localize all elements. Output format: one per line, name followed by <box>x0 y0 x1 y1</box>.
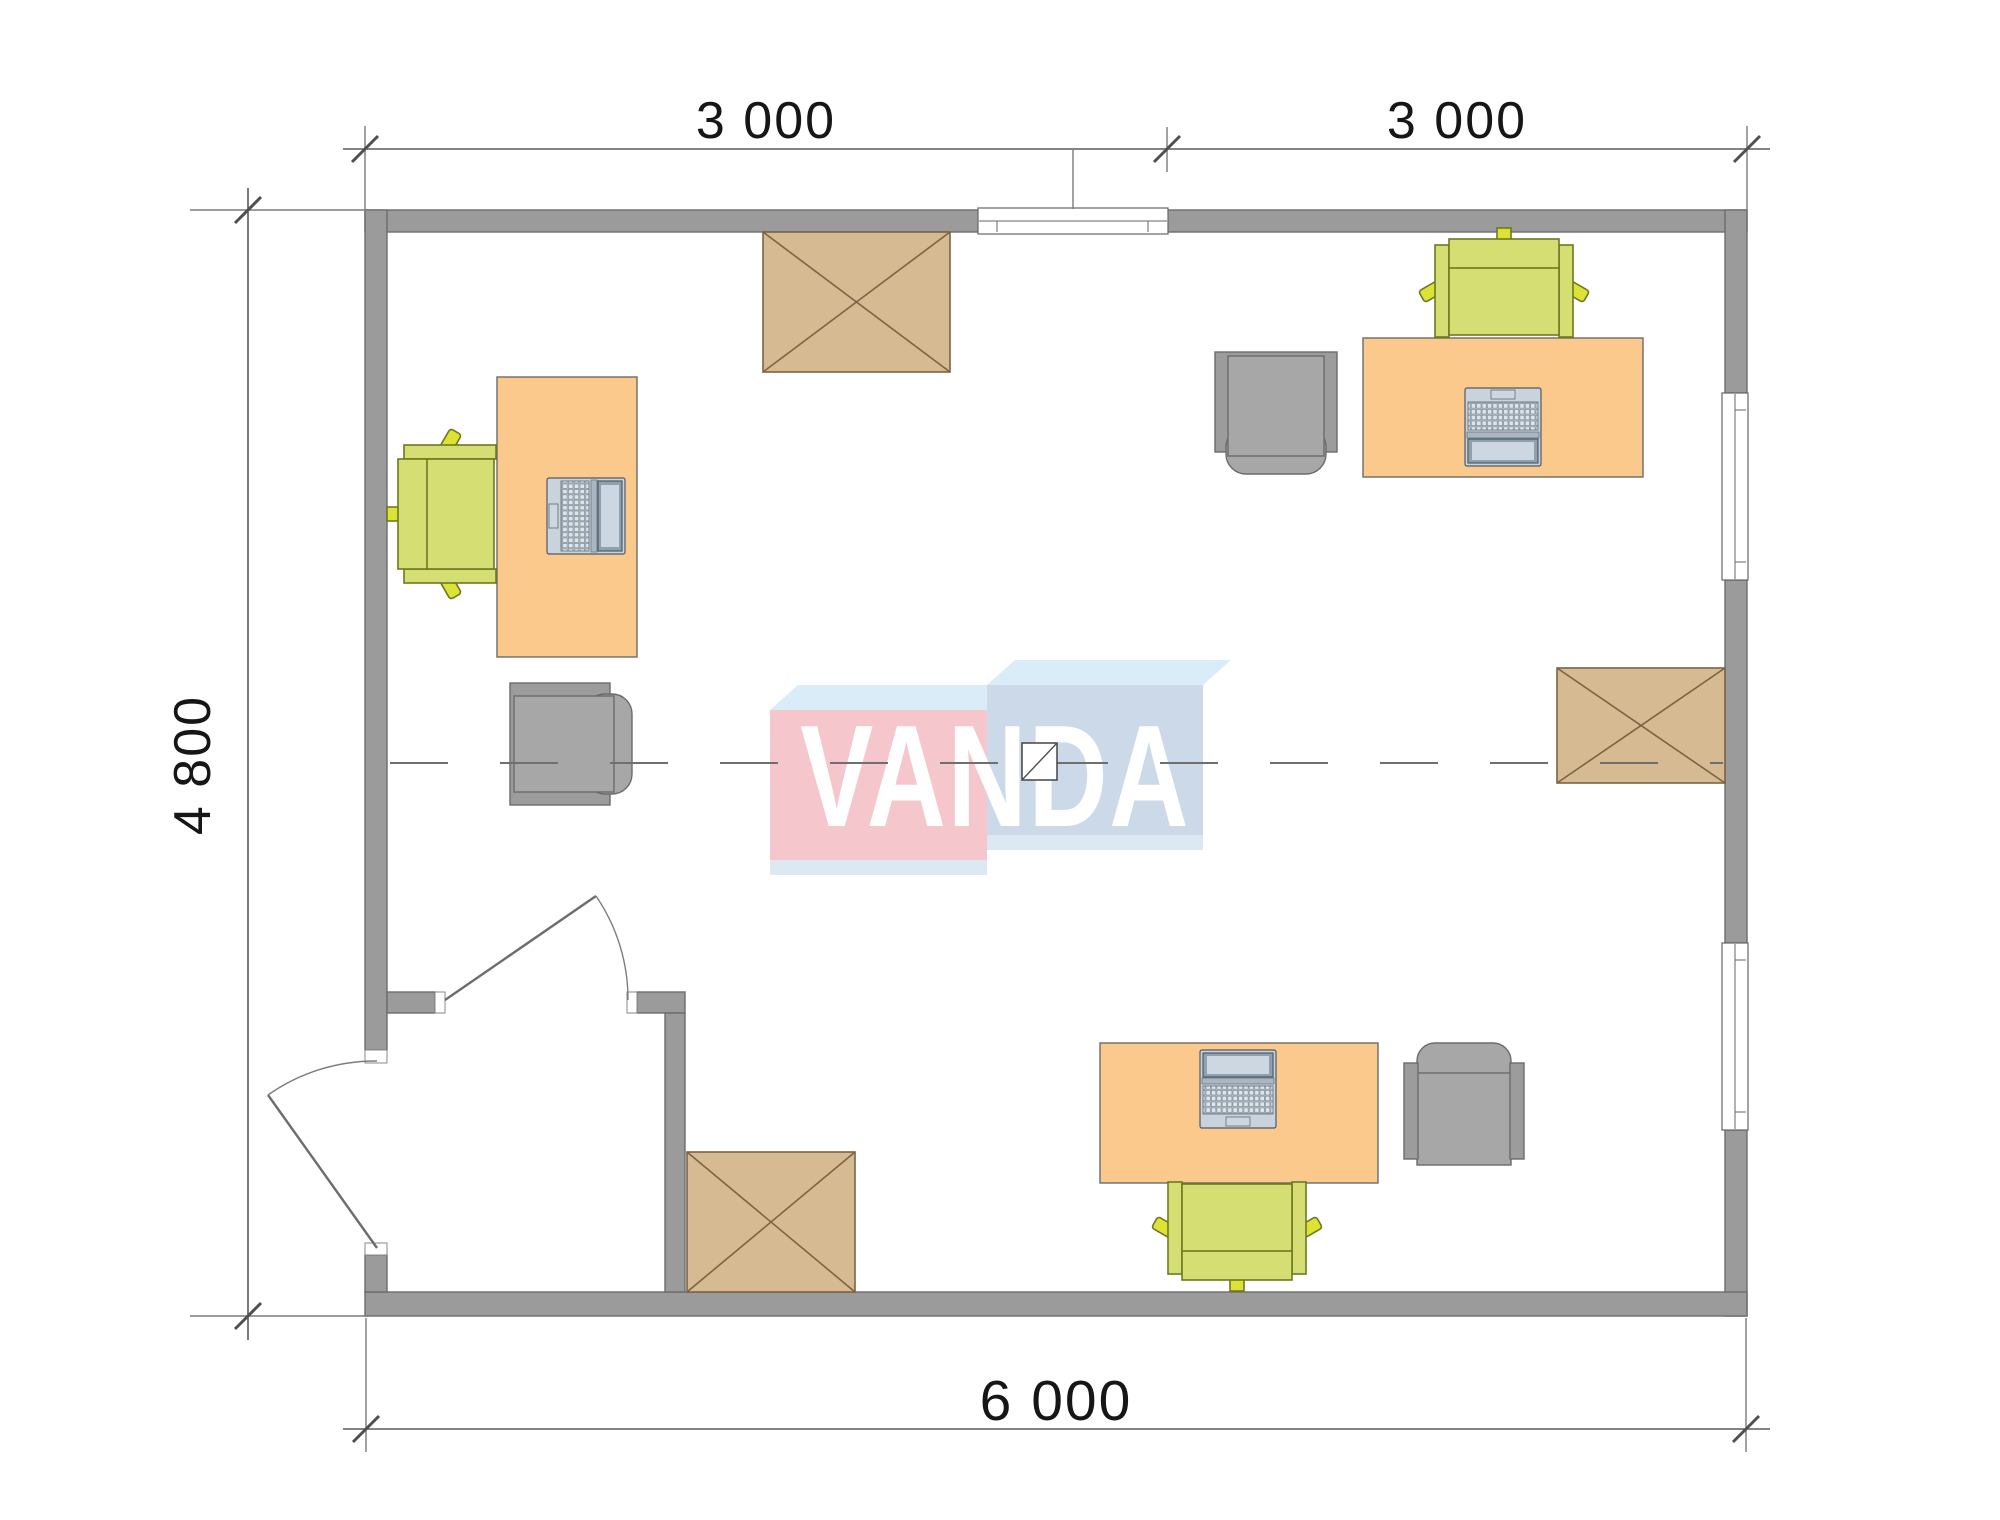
crossed-cabinet-bottom <box>687 1152 855 1292</box>
entrance-door <box>268 1061 377 1248</box>
armchair-bottom-right <box>1404 1043 1524 1165</box>
desk-chair-top-right <box>1418 228 1589 337</box>
wall-top-left-segment <box>365 210 980 232</box>
crossed-cabinet-top <box>763 232 950 372</box>
task-chair-top <box>1215 352 1337 474</box>
interior-door-swing-arc <box>596 896 628 1000</box>
desk-chair-left <box>387 428 496 599</box>
vanda-watermark-logo: VANDA <box>770 660 1231 875</box>
crossed-cabinet-right <box>1557 668 1725 783</box>
logo-shadow-left <box>770 860 987 875</box>
interior-door-leaf <box>445 896 596 1000</box>
dimension-label-top-right: 3 000 <box>1387 92 1527 150</box>
dimension-label-bottom: 6 000 <box>980 1369 1133 1433</box>
floor-plan-page: VANDA <box>0 0 2000 1520</box>
wall-left <box>365 210 387 1050</box>
window-right-lower <box>1722 943 1748 1130</box>
laptop-top-right-desk <box>1465 388 1541 466</box>
entrance-door-swing-arc <box>268 1061 377 1095</box>
module-joint-marker <box>1022 743 1057 780</box>
door-jambs <box>365 992 637 1255</box>
wall-right-lower <box>1725 1130 1747 1316</box>
laptop-left-desk <box>547 478 625 554</box>
vestibule-walls <box>387 992 685 1292</box>
dimension-top: 3 000 3 000 <box>343 92 1770 211</box>
task-chair-left <box>510 683 632 805</box>
dimension-bottom: 6 000 <box>343 1318 1770 1452</box>
wall-left-stub <box>365 1255 387 1292</box>
dimension-label-left: 4 800 <box>164 695 222 835</box>
desk-chair-bottom <box>1151 1182 1322 1291</box>
window-right-upper <box>1722 393 1748 580</box>
wall-right-middle <box>1725 580 1747 943</box>
window-top <box>978 208 1168 234</box>
vestibule-wall-corner <box>637 992 685 1013</box>
floor-plan-drawing: VANDA <box>0 0 2000 1520</box>
wall-right-upper <box>1725 210 1747 393</box>
logo-text: VANDA <box>800 695 1190 857</box>
dimension-left: 4 800 <box>164 188 368 1340</box>
interior-door <box>445 896 628 1000</box>
entrance-door-leaf <box>268 1095 377 1248</box>
vestibule-wall-vertical <box>665 1013 685 1292</box>
logo-box-top-right <box>987 660 1231 685</box>
vestibule-wall-stub-left <box>387 992 435 1013</box>
wall-bottom <box>365 1292 1747 1316</box>
dimension-label-top-left: 3 000 <box>696 92 836 150</box>
laptop-bottom-desk <box>1200 1050 1276 1128</box>
wall-top-right-segment <box>1167 210 1747 232</box>
